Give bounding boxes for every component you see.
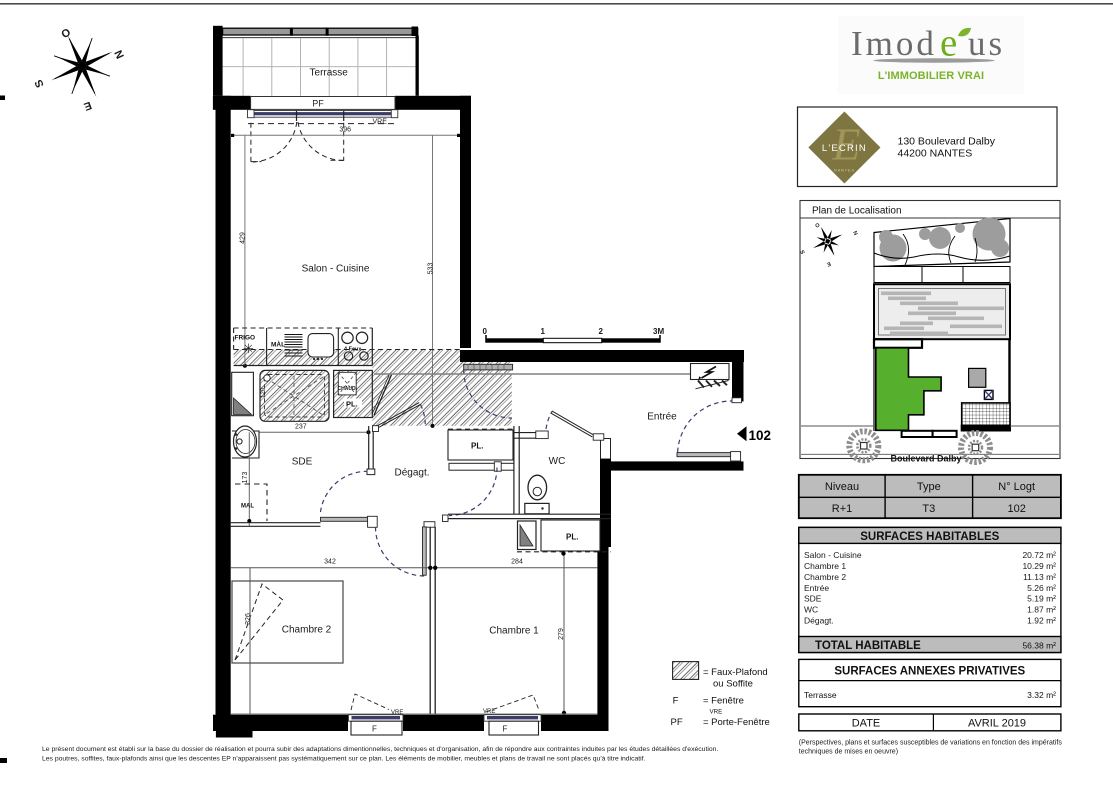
svg-text:E: E [82, 99, 93, 113]
svg-text:1: 1 [541, 327, 546, 336]
svg-text:Terrasse: Terrasse [310, 68, 349, 79]
svg-text:56.38 m²: 56.38 m² [1022, 640, 1056, 650]
svg-text:Niveau: Niveau [825, 481, 859, 493]
svg-text:237: 237 [295, 424, 307, 431]
svg-text:F: F [673, 696, 679, 707]
svg-text:techniques de mises en oeuvre): techniques de mises en oeuvre) [799, 749, 898, 756]
svg-text:e: e [940, 22, 957, 65]
svg-text:VRE: VRE [483, 709, 495, 715]
svg-text:342: 342 [324, 559, 336, 566]
svg-text:173: 173 [242, 472, 249, 484]
svg-text:= Fenêtre: = Fenêtre [703, 696, 744, 707]
svg-text:L'IMMOBILIER VRAI: L'IMMOBILIER VRAI [878, 70, 984, 82]
svg-text:= Porte-Fenêtre: = Porte-Fenêtre [703, 717, 770, 728]
svg-text:SURFACES HABITABLES: SURFACES HABITABLES [860, 531, 999, 543]
svg-text:279: 279 [558, 628, 565, 640]
svg-text:120: 120 [261, 387, 267, 398]
svg-text:20.72 m²: 20.72 m² [1022, 550, 1056, 560]
svg-text:CHAUD.: CHAUD. [338, 386, 358, 392]
svg-text:N° Logt: N° Logt [998, 481, 1035, 493]
svg-text:533: 533 [428, 263, 435, 275]
svg-text:S: S [33, 78, 47, 90]
svg-text:= Faux-Plafond: = Faux-Plafond [703, 667, 768, 678]
svg-text:T3: T3 [922, 503, 935, 515]
svg-text:us: us [968, 24, 1005, 63]
svg-text:R+1: R+1 [832, 503, 853, 515]
svg-text:PL.: PL. [566, 533, 578, 542]
svg-text:102: 102 [1008, 503, 1026, 515]
svg-text:Chambre 2: Chambre 2 [804, 572, 846, 582]
svg-text:Dégagt.: Dégagt. [804, 615, 834, 625]
svg-text:130 Boulevard Dalby: 130 Boulevard Dalby [898, 136, 996, 148]
svg-text:Les poutres, soffites, faux-pl: Les poutres, soffites, faux-plafonds ain… [42, 756, 646, 763]
svg-text:10.29 m²: 10.29 m² [1022, 561, 1056, 571]
svg-text:Boulevard Dalby: Boulevard Dalby [890, 454, 961, 464]
svg-text:Terrasse: Terrasse [804, 690, 837, 700]
svg-text:Plan de Localisation: Plan de Localisation [812, 206, 902, 217]
svg-text:5.26 m²: 5.26 m² [1027, 583, 1056, 593]
svg-text:PF: PF [671, 717, 683, 728]
svg-text:TOTAL HABITABLE: TOTAL HABITABLE [815, 640, 921, 652]
svg-text:Entrée: Entrée [647, 412, 677, 423]
svg-text:44200 NANTES: 44200 NANTES [898, 148, 973, 160]
svg-text:3M: 3M [653, 327, 664, 336]
svg-text:4 Feux: 4 Feux [344, 347, 362, 353]
svg-text:ou Soffite: ou Soffite [713, 679, 753, 690]
svg-text:VRE: VRE [710, 709, 723, 716]
svg-text:WC: WC [804, 604, 818, 614]
svg-text:VRE: VRE [373, 118, 388, 125]
svg-text:PF: PF [312, 98, 324, 108]
svg-text:11.13 m²: 11.13 m² [1023, 572, 1056, 582]
svg-text:F: F [503, 725, 508, 734]
svg-text:MÀL: MÀL [271, 340, 285, 349]
svg-text:✳: ✳ [243, 341, 254, 356]
svg-text:396: 396 [339, 127, 351, 134]
svg-text:Chambre 2: Chambre 2 [282, 625, 332, 636]
svg-text:Salon - Cuisine: Salon - Cuisine [804, 550, 862, 560]
svg-text:1.92 m²: 1.92 m² [1027, 615, 1056, 625]
svg-text:AVRIL 2019: AVRIL 2019 [968, 717, 1026, 729]
svg-text:284: 284 [511, 559, 523, 566]
svg-text:(Perspectives, plans et surfac: (Perspectives, plans et surfaces suscept… [799, 740, 1063, 747]
svg-text:WC: WC [549, 456, 566, 467]
svg-text:Chambre 1: Chambre 1 [804, 561, 846, 571]
svg-text:0: 0 [483, 327, 488, 336]
svg-text:PL.: PL. [346, 400, 358, 409]
svg-text:SDE: SDE [292, 457, 313, 468]
svg-text:1.87 m²: 1.87 m² [1027, 604, 1056, 614]
svg-text:N: N [111, 49, 125, 61]
svg-text:Le présent document est établi: Le présent document est établi sur la ba… [42, 746, 718, 753]
svg-text:Salon - Cuisine: Salon - Cuisine [302, 264, 370, 275]
svg-text:DATE: DATE [852, 717, 881, 729]
svg-text:Entrée: Entrée [804, 583, 829, 593]
svg-text:SURFACES ANNEXES PRIVATIVES: SURFACES ANNEXES PRIVATIVES [834, 665, 1025, 677]
svg-text:SDE: SDE [804, 594, 822, 604]
svg-text:Type: Type [917, 481, 941, 493]
svg-text:Imod: Imod [851, 24, 937, 63]
svg-text:NANTES: NANTES [834, 168, 855, 173]
svg-text:Chambre 1: Chambre 1 [489, 626, 539, 637]
svg-text:429: 429 [240, 232, 247, 244]
svg-text:F: F [372, 725, 377, 734]
svg-text:3.32 m²: 3.32 m² [1027, 690, 1056, 700]
svg-text:VRE: VRE [391, 710, 403, 716]
svg-text:MAL: MAL [241, 504, 254, 510]
svg-text:102: 102 [749, 428, 772, 443]
svg-text:L'ECRIN: L'ECRIN [822, 143, 867, 154]
svg-text:PL.: PL. [471, 442, 483, 451]
svg-text:O: O [60, 26, 74, 41]
svg-text:326: 326 [245, 613, 252, 625]
svg-text:2: 2 [599, 327, 604, 336]
svg-text:Dégagt.: Dégagt. [394, 468, 429, 479]
svg-text:5.19 m²: 5.19 m² [1027, 594, 1056, 604]
